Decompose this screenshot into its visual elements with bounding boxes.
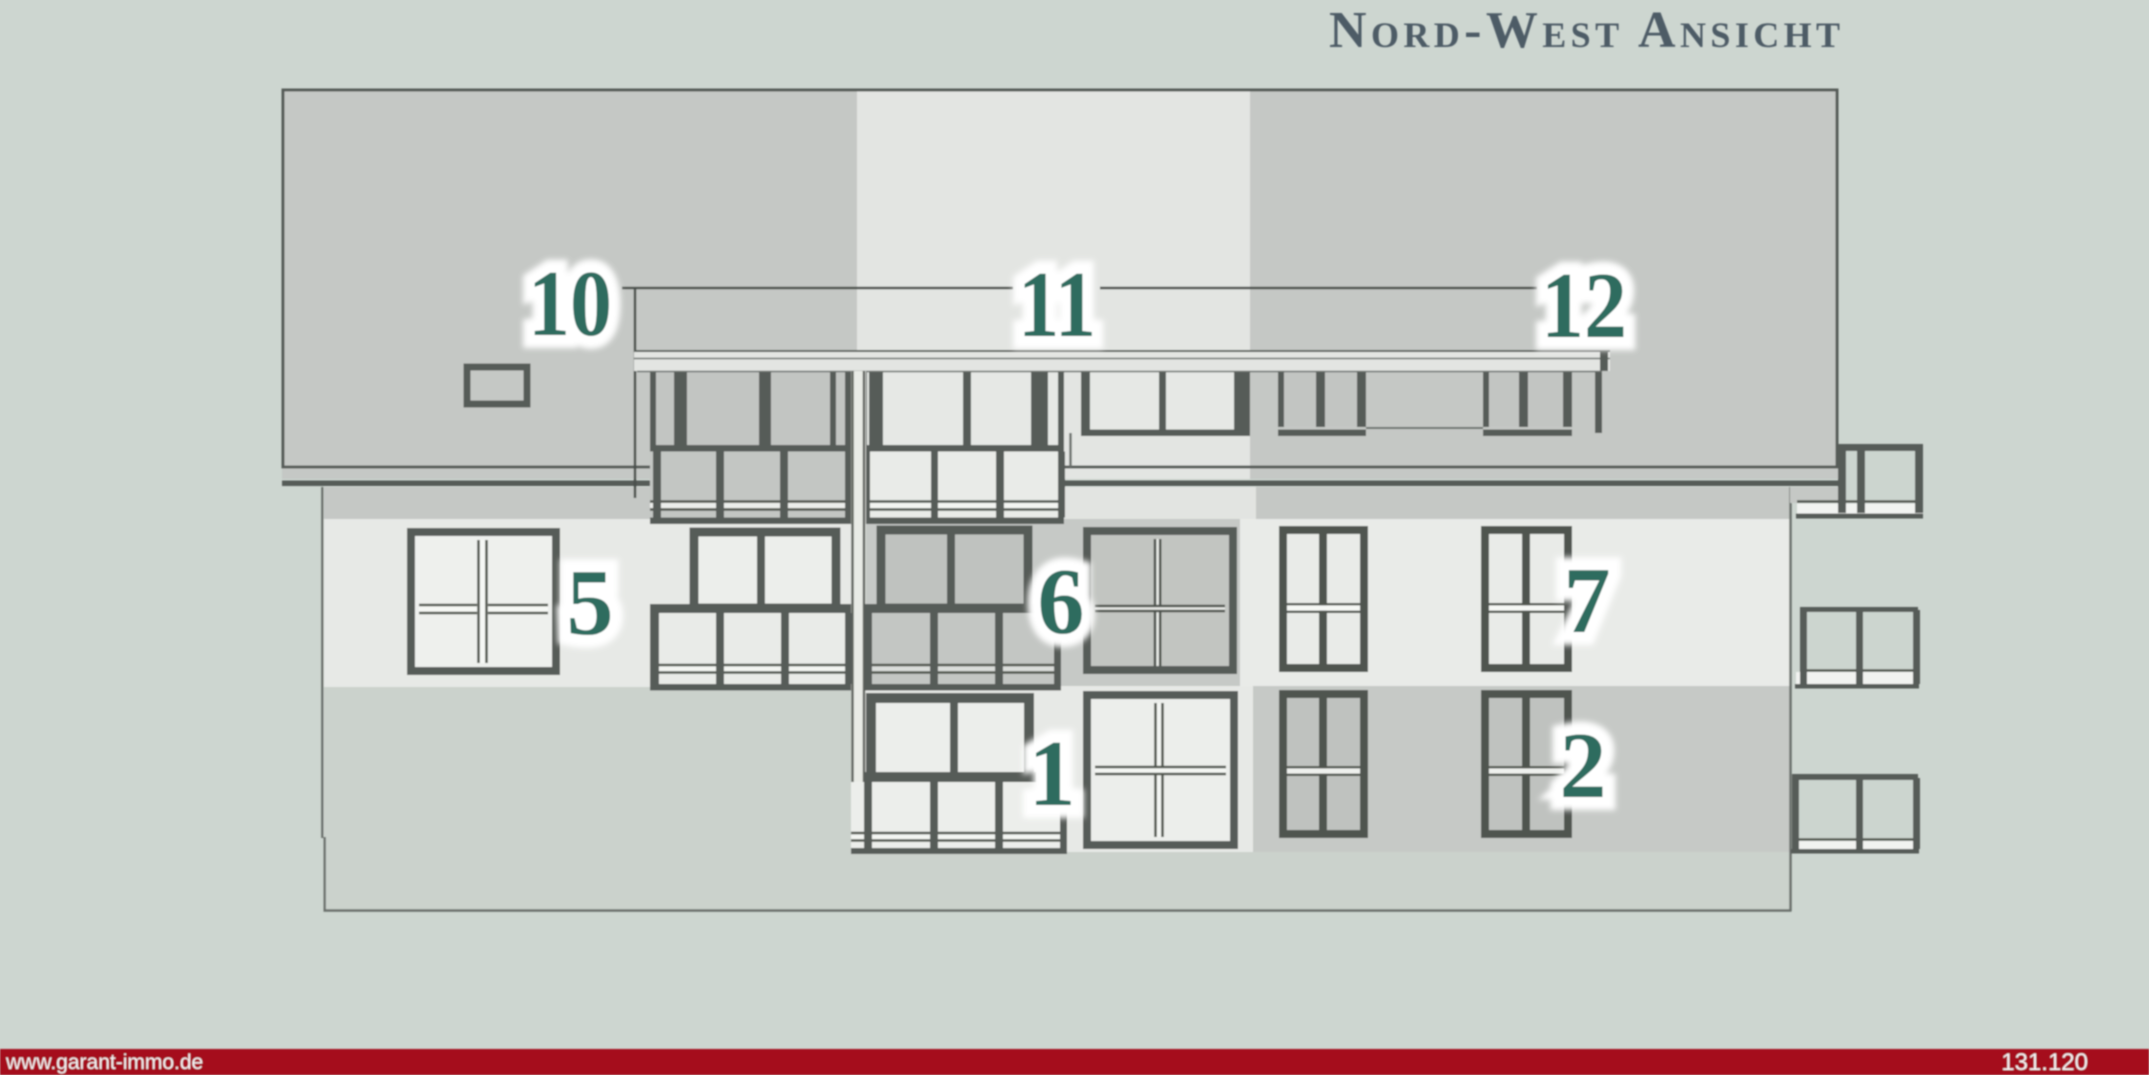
svg-text:2: 2 [1560,714,1607,818]
svg-text:10: 10 [528,252,612,356]
svg-text:1: 1 [1029,722,1076,826]
svg-text:www.garant-immo.de: www.garant-immo.de [5,1051,203,1074]
svg-text:131.120: 131.120 [2001,1049,2088,1075]
svg-text:Nord-West Ansicht: Nord-West Ansicht [1329,2,1844,59]
svg-text:12: 12 [1541,254,1627,358]
svg-text:11: 11 [1018,253,1096,357]
svg-text:7: 7 [1564,549,1611,653]
svg-text:5: 5 [567,551,614,655]
svg-text:6: 6 [1038,550,1085,654]
